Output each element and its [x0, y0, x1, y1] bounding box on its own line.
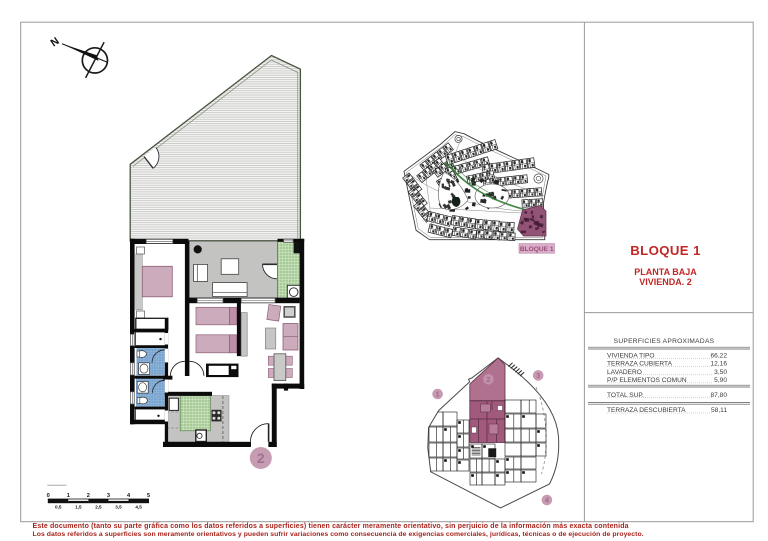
svg-text:Este documento (tanto su parte: Este documento (tanto su parte gráfica c…: [33, 523, 629, 530]
svg-text:5: 5: [147, 493, 150, 499]
svg-text:VIVIENDA. 2: VIVIENDA. 2: [639, 277, 692, 287]
svg-text:1: 1: [67, 493, 70, 499]
svg-text:0,5: 0,5: [55, 504, 62, 509]
svg-text:LAVADERO: LAVADERO: [607, 369, 642, 376]
svg-text:3,5: 3,5: [115, 504, 122, 509]
svg-text:0: 0: [47, 493, 50, 499]
svg-text:3,50: 3,50: [714, 369, 727, 376]
svg-text:12,16: 12,16: [710, 361, 727, 368]
svg-text:SUPERFICIES APROXIMADAS: SUPERFICIES APROXIMADAS: [614, 338, 715, 345]
svg-text:3: 3: [107, 493, 110, 499]
svg-text:58,11: 58,11: [711, 407, 727, 414]
svg-text:P/P ELEMENTOS COMUN: P/P ELEMENTOS COMUN: [607, 377, 687, 384]
svg-text:PLANTA BAJA: PLANTA BAJA: [634, 267, 697, 277]
svg-text:2: 2: [486, 375, 490, 384]
svg-text:87,80: 87,80: [710, 392, 727, 399]
svg-text:BLOQUE 1: BLOQUE 1: [520, 246, 554, 253]
svg-text:BLOQUE 1: BLOQUE 1: [630, 243, 701, 258]
svg-text:66,22: 66,22: [710, 353, 727, 360]
svg-text:Los datos referidos a superfic: Los datos referidos a superficies son me…: [33, 531, 644, 538]
svg-text:2: 2: [87, 493, 90, 499]
svg-text:TERRAZA DESCUBIERTA: TERRAZA DESCUBIERTA: [607, 407, 686, 414]
svg-text:5,90: 5,90: [714, 377, 727, 384]
svg-text:2,5: 2,5: [95, 504, 102, 509]
svg-text:1: 1: [436, 390, 440, 399]
svg-text:2: 2: [257, 450, 265, 466]
svg-text:4,5: 4,5: [135, 504, 142, 509]
svg-text:1,5: 1,5: [75, 504, 82, 509]
svg-text:3: 3: [536, 371, 540, 380]
